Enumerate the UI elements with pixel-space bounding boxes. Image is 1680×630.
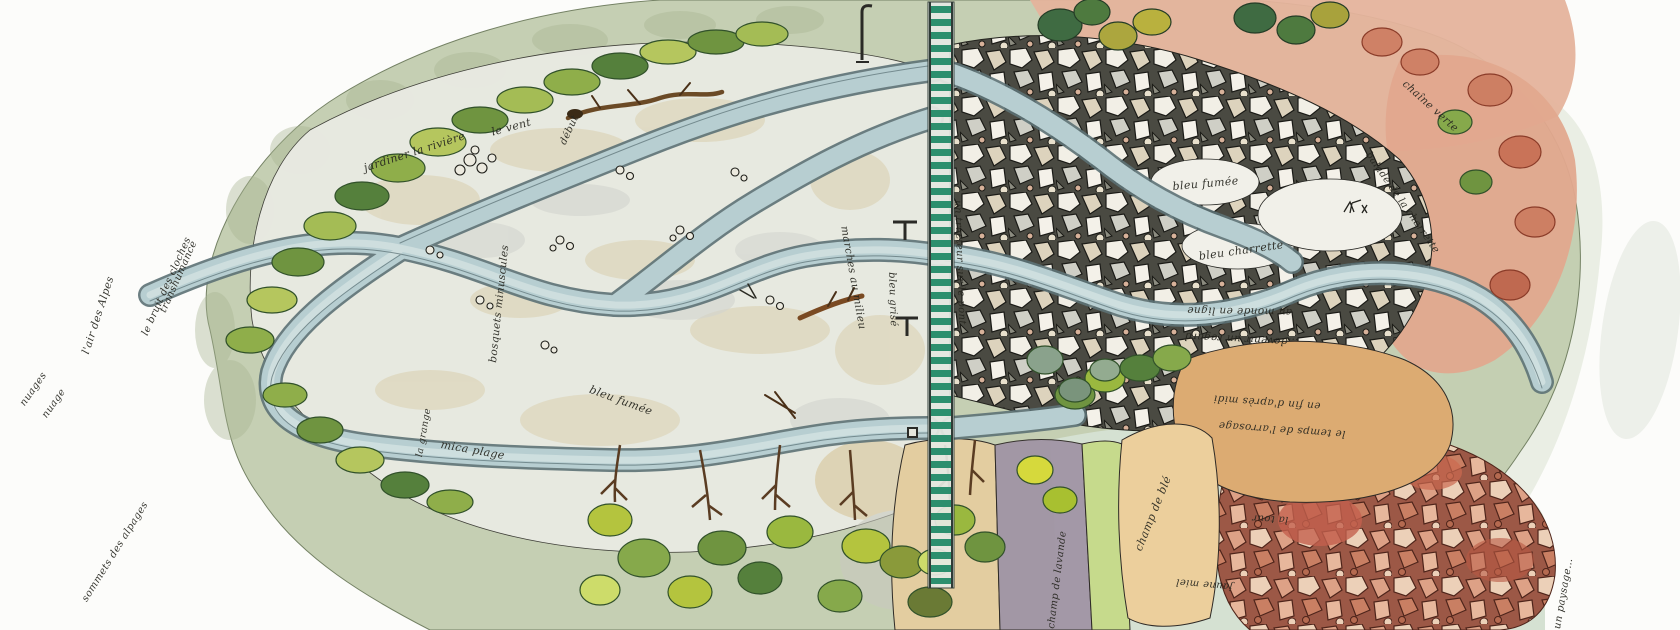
watercolor-map: jardiner la rivièrele ventdébutbosquets … xyxy=(0,0,1680,630)
painting-scene xyxy=(0,0,1680,630)
field-wheat xyxy=(1119,424,1220,626)
footbridge xyxy=(928,2,954,588)
